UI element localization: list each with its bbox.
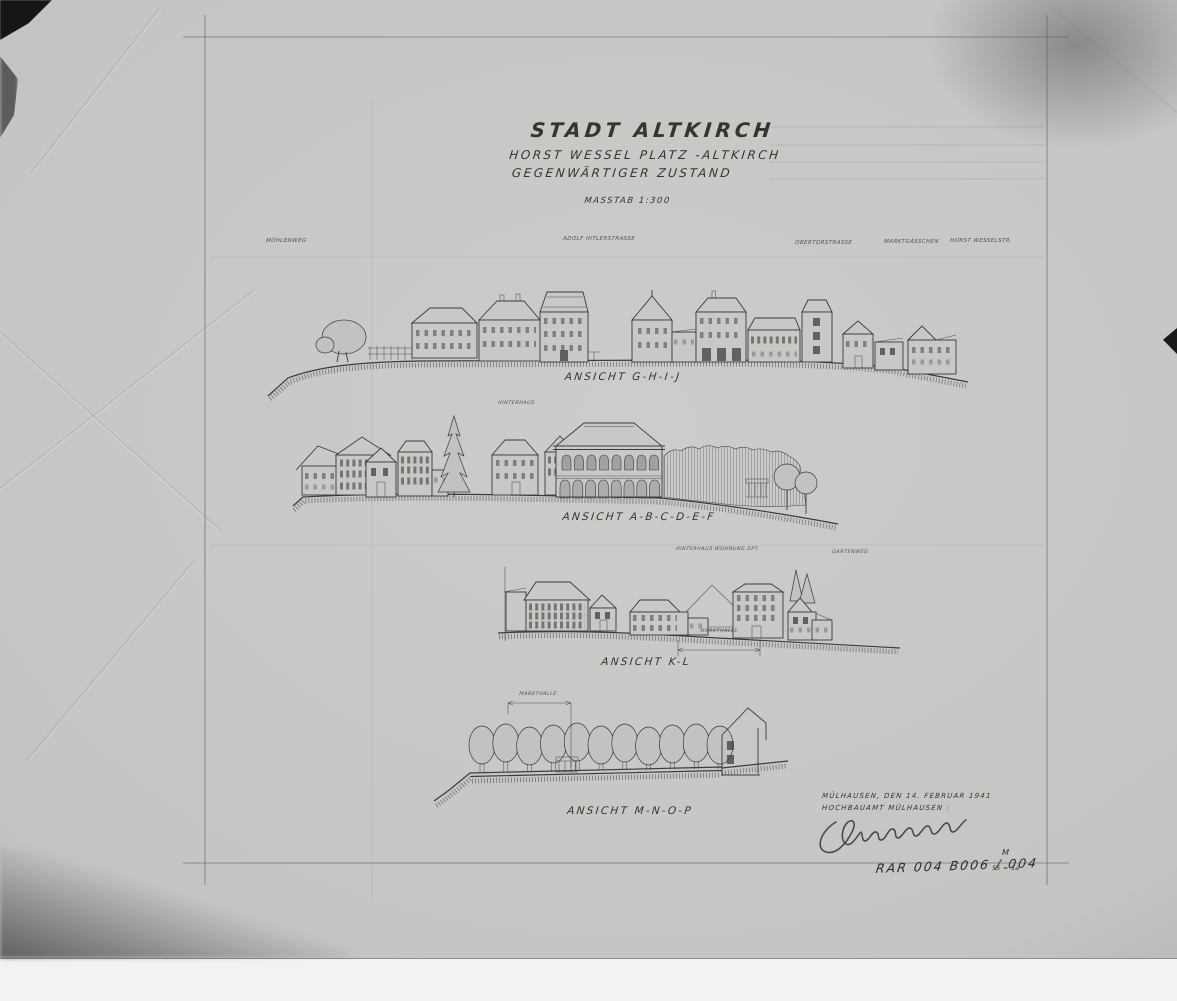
pollarded-tree-row [469,723,733,772]
elevation-mnop [434,701,788,806]
fence [368,346,412,360]
elevation-caption-kl: ANSICHT K-L [545,656,746,668]
drawing-subtitle-2: GEGENWÄRTIGER ZUSTAND [501,166,742,180]
building [412,308,477,358]
corner-mark: M [1002,848,1010,857]
building [748,318,800,362]
drawing-subtitle-1: HORST WESSEL PLATZ -ALTKIRCH [504,148,785,162]
issuing-office: HOCHBAUAMT MÜLHAUSEN : [822,804,951,812]
sheet-code: 55 = 5a [992,865,1020,872]
conifer-tree [438,416,470,497]
market-hall [553,423,665,498]
elevation-kl [498,567,900,656]
elevation-note: HINTERHAUS [498,400,535,406]
drawing-title: STADT ALTKIRCH [524,118,782,142]
building-cluster [296,437,448,497]
scanned-architectural-drawing: { "document": { "title": "STADT ALTKIRCH… [0,0,1177,1000]
building [875,338,903,370]
dimension-label: MARKTHALLE [512,691,565,697]
scanner-background-strip [0,958,1177,1001]
elevation-caption-mnop: ANSICHT M-N-O-P [529,805,730,817]
building [504,582,590,631]
building [843,321,873,368]
building [479,294,540,361]
street-label: MÜHLENWEG [266,238,307,244]
building [696,291,746,362]
building [632,290,696,362]
building [590,595,616,631]
street-label: ADOLF HITLERSTRASSE [563,236,636,242]
building [540,292,588,362]
signature [820,820,966,852]
street-label: OBERTORSTRASSE [795,240,853,246]
dimension-label: MARKTHALLE [693,628,746,634]
elevation-caption-ghij: ANSICHT G-H-I-J [522,371,723,383]
place-and-date: MÜLHAUSEN, DEN 14. FEBRUAR 1941 [822,792,992,800]
scale-note: MASSTAB 1:300 [559,196,695,206]
dimension-marker [678,640,760,656]
conifer-trees [790,570,815,603]
street-label: HORST WESSELSTR. [950,238,1013,244]
elevation-note: HINTERHAUS WOHNUNG DPT. [676,546,760,552]
street-label: MARKTGÄSSCHEN [884,239,940,245]
building [908,326,956,374]
elevation-note: GARTENWEG [832,549,869,555]
building [492,440,538,495]
elevation-caption-abcdef: ANSICHT A-B-C-D-E-F [538,511,739,523]
tower-building [802,300,832,362]
building [788,598,832,640]
tree [316,320,366,362]
